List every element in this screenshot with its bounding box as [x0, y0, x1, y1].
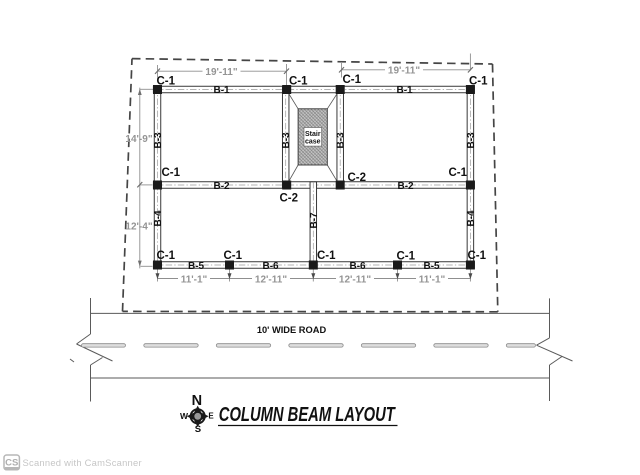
svg-text:B-4: B-4: [466, 210, 477, 227]
svg-text:10' WIDE ROAD: 10' WIDE ROAD: [257, 325, 327, 335]
svg-text:19'-11": 19'-11": [388, 65, 420, 76]
svg-text:B-1: B-1: [214, 85, 231, 96]
svg-text:C-2: C-2: [348, 172, 367, 184]
svg-text:S: S: [195, 424, 201, 435]
svg-text:C-1: C-1: [289, 76, 308, 88]
svg-text:B-3: B-3: [466, 132, 477, 149]
svg-text:14'-9": 14'-9": [125, 134, 152, 145]
svg-text:B-3: B-3: [153, 132, 164, 149]
svg-text:12'-4": 12'-4": [125, 221, 152, 232]
svg-text:C-1: C-1: [469, 75, 488, 87]
svg-text:W: W: [180, 411, 189, 421]
svg-text:19'-11": 19'-11": [205, 67, 237, 78]
svg-text:C-1: C-1: [343, 74, 362, 86]
svg-text:N: N: [192, 393, 202, 409]
svg-text:C-1: C-1: [224, 250, 243, 262]
svg-text:12'-11": 12'-11": [339, 275, 371, 286]
svg-text:COLUMN BEAM LAYOUT: COLUMN BEAM LAYOUT: [219, 404, 396, 426]
svg-text:B-7: B-7: [309, 212, 320, 229]
svg-text:11'-1": 11'-1": [181, 275, 208, 286]
svg-text:C-1: C-1: [449, 167, 468, 179]
svg-text:B-6: B-6: [350, 261, 367, 272]
svg-text:B-5: B-5: [188, 261, 205, 272]
svg-text:11'-1": 11'-1": [419, 275, 446, 286]
svg-text:CS: CS: [5, 458, 18, 469]
svg-text:B-1: B-1: [397, 85, 414, 96]
svg-text:B-5: B-5: [424, 261, 441, 272]
svg-text:Scanned with CamScanner: Scanned with CamScanner: [23, 457, 142, 468]
svg-text:B-6: B-6: [263, 261, 280, 272]
svg-text:B-2: B-2: [398, 181, 415, 192]
svg-text:C-1: C-1: [397, 250, 416, 262]
svg-text:C-1: C-1: [468, 250, 487, 262]
svg-text:C-1: C-1: [317, 250, 336, 262]
svg-text:E: E: [208, 412, 214, 421]
svg-text:B-2: B-2: [214, 181, 231, 192]
svg-text:C-2: C-2: [280, 193, 299, 205]
svg-text:12'-11": 12'-11": [255, 275, 287, 286]
svg-text:C-1: C-1: [157, 75, 176, 87]
svg-text:B-4: B-4: [153, 210, 164, 227]
svg-text:C-1: C-1: [157, 250, 176, 262]
svg-text:C-1: C-1: [162, 167, 181, 179]
svg-text:Stair: Stair: [305, 131, 321, 138]
svg-text:case: case: [305, 139, 321, 146]
svg-text:B-3: B-3: [336, 132, 347, 149]
svg-text:B-3: B-3: [281, 132, 292, 149]
